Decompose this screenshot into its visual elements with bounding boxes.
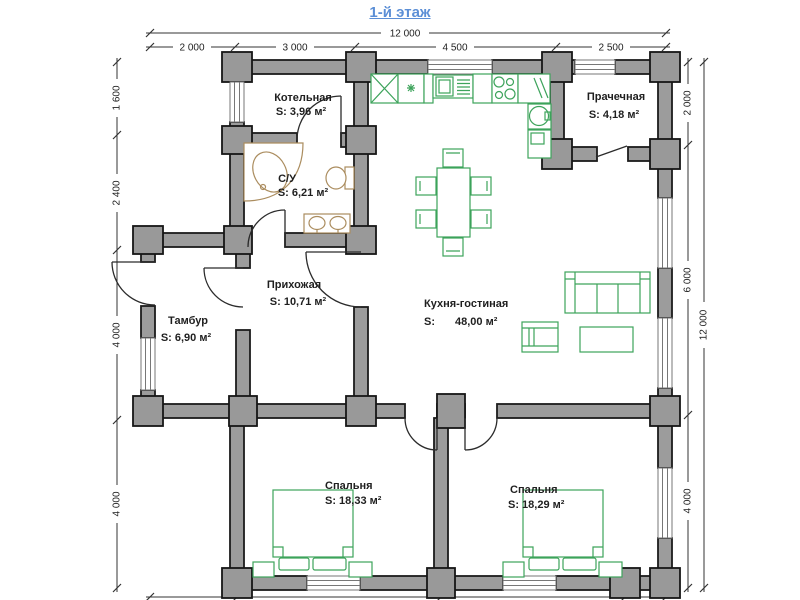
room-name: Спальня — [510, 484, 558, 496]
base-cabinet — [528, 130, 551, 158]
round-sink-unit — [528, 104, 551, 129]
wall-segment — [658, 268, 672, 318]
dim-label: 4 500 — [442, 43, 467, 54]
counter-unit — [473, 74, 492, 103]
dim-label: 12 000 — [699, 309, 710, 340]
dim-label: 1 600 — [112, 85, 123, 110]
nightstand — [349, 562, 372, 577]
door-swing — [248, 210, 285, 247]
wall-junction — [650, 139, 680, 169]
room-name: Котельная — [274, 92, 332, 104]
wall-junction — [222, 568, 252, 598]
window — [658, 198, 672, 268]
vestibule-hallway-door — [204, 268, 243, 307]
chair — [471, 177, 491, 195]
dining-table — [437, 168, 470, 237]
wall-segment — [141, 306, 155, 338]
dimension-left: 1 600 2 400 4 000 4 000 — [111, 58, 123, 592]
wall-junction — [222, 52, 252, 82]
room-area: S: 3,96 м² — [276, 106, 327, 118]
room-name: Тамбур — [168, 315, 208, 327]
window — [658, 318, 672, 388]
wall-junction — [437, 394, 465, 428]
freezer-unit — [398, 74, 424, 103]
door-swing — [465, 418, 497, 450]
pillow — [279, 558, 309, 570]
wall-junction — [650, 396, 680, 426]
wall-junction — [650, 568, 680, 598]
chair — [443, 238, 463, 256]
wall-segment — [434, 418, 448, 576]
room-area: S: 6,21 м² — [278, 187, 329, 199]
corner-counter — [518, 74, 550, 103]
window — [503, 576, 556, 590]
room-name: Кухня-гостиная — [424, 298, 508, 310]
chair — [443, 149, 463, 167]
window — [230, 82, 244, 122]
room-area: S: 4,18 м² — [589, 109, 640, 121]
dim-label: 6 000 — [683, 267, 694, 292]
coffee-table — [580, 327, 633, 352]
window — [307, 576, 360, 590]
dim-label: 2 500 — [598, 43, 623, 54]
door-swing — [405, 418, 437, 450]
wall-junction — [427, 568, 455, 598]
hob-unit — [492, 74, 518, 103]
room-area-label: S: — [424, 316, 435, 328]
door-swing — [112, 262, 155, 305]
wall-junction — [224, 226, 252, 254]
chair — [416, 177, 436, 195]
dimension-top-total: 12 000 — [146, 27, 670, 40]
laundry-door — [596, 146, 627, 157]
pillow — [563, 558, 596, 570]
window — [575, 60, 615, 74]
dimension-right-total: 12 000 — [698, 58, 710, 592]
snowflake-icon — [407, 84, 415, 92]
toilet — [326, 167, 354, 189]
oven-unit — [433, 75, 473, 98]
window — [141, 338, 155, 390]
room-area: S: 18,29 м² — [508, 499, 565, 511]
wall-junction — [133, 396, 163, 426]
wall-junction — [133, 226, 163, 254]
room-name: Прихожая — [267, 279, 321, 291]
chair — [416, 210, 436, 228]
dim-label: 2 400 — [112, 180, 123, 205]
window — [428, 60, 492, 74]
window — [658, 468, 672, 538]
pillow — [313, 558, 346, 570]
dim-label: 2 000 — [179, 43, 204, 54]
dim-label: 4 000 — [112, 491, 123, 516]
double-sink — [304, 214, 350, 233]
wall-segment — [230, 60, 428, 74]
wall-junction — [346, 396, 376, 426]
fridge-unit — [371, 74, 398, 103]
dim-label: 3 000 — [282, 43, 307, 54]
pillow — [529, 558, 559, 570]
nightstand — [599, 562, 622, 577]
wall-junction — [346, 126, 376, 154]
room-name: Прачечная — [587, 91, 645, 103]
door-swing — [204, 268, 243, 307]
dim-label: 4 000 — [683, 488, 694, 513]
dim-label: 12 000 — [390, 29, 421, 40]
dim-label: 4 000 — [112, 322, 123, 347]
entrance-door — [112, 262, 155, 305]
wall-segment — [230, 418, 244, 576]
kitchen-units — [371, 74, 551, 158]
nightstand — [253, 562, 274, 577]
wall-segment — [497, 404, 672, 418]
bedroom-left-door — [405, 418, 437, 450]
bathroom-door — [248, 210, 285, 247]
room-name: С/У — [278, 173, 296, 185]
dining-set — [416, 149, 491, 256]
armchair — [522, 322, 558, 352]
wall-junction — [650, 52, 680, 82]
living-room-furniture — [522, 272, 650, 352]
room-name: Спальня — [325, 480, 373, 492]
dim-label: 2 000 — [683, 90, 694, 115]
wall-junction — [229, 396, 257, 426]
sofa — [565, 272, 650, 313]
room-area: S: 6,90 м² — [161, 332, 212, 344]
floor-plan-drawing: 12 000 2 000 3 000 4 500 2 500 1 600 2 4… — [0, 0, 800, 600]
counter-unit — [424, 74, 433, 103]
dimension-right-inner: 2 000 6 000 4 000 — [682, 58, 694, 592]
chair — [471, 210, 491, 228]
room-area: S: 10,71 м² — [270, 296, 327, 308]
nightstand — [503, 562, 524, 577]
room-area: 48,00 м² — [455, 316, 498, 328]
door-leaf — [596, 146, 627, 157]
bedroom-right-door — [465, 418, 497, 450]
room-area: S: 18,33 м² — [325, 495, 382, 507]
